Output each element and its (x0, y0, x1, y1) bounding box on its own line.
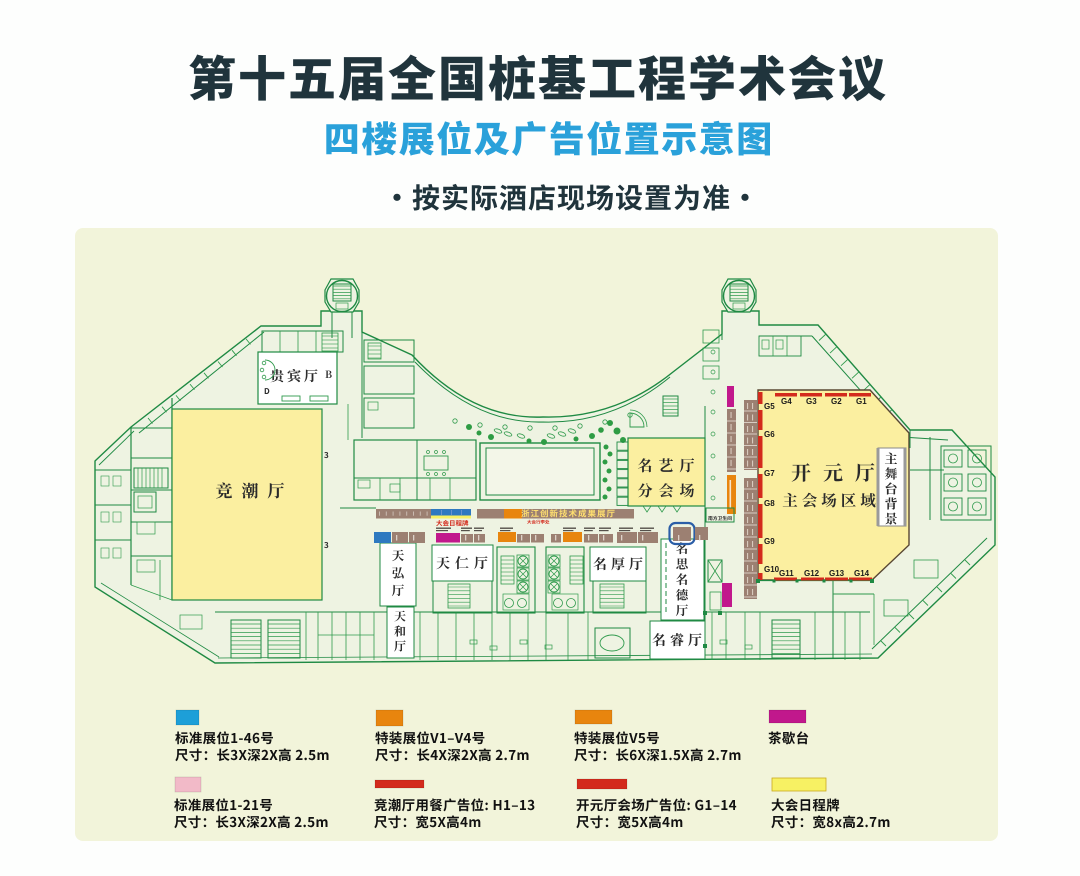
svg-text:G6: G6 (764, 430, 775, 439)
svg-text:G13: G13 (829, 569, 845, 578)
svg-text:G1: G1 (856, 397, 867, 406)
svg-text:G14: G14 (854, 569, 870, 578)
svg-text:G9: G9 (764, 537, 775, 546)
svg-text:G8: G8 (764, 499, 775, 508)
svg-text:G2: G2 (831, 397, 842, 406)
svg-text:G12: G12 (804, 569, 820, 578)
svg-text:G5: G5 (764, 402, 775, 411)
svg-text:G3: G3 (806, 397, 817, 406)
svg-text:G7: G7 (764, 469, 775, 478)
svg-text:G4: G4 (781, 397, 792, 406)
svg-text:G10: G10 (764, 565, 780, 574)
svg-text:G11: G11 (779, 569, 794, 578)
